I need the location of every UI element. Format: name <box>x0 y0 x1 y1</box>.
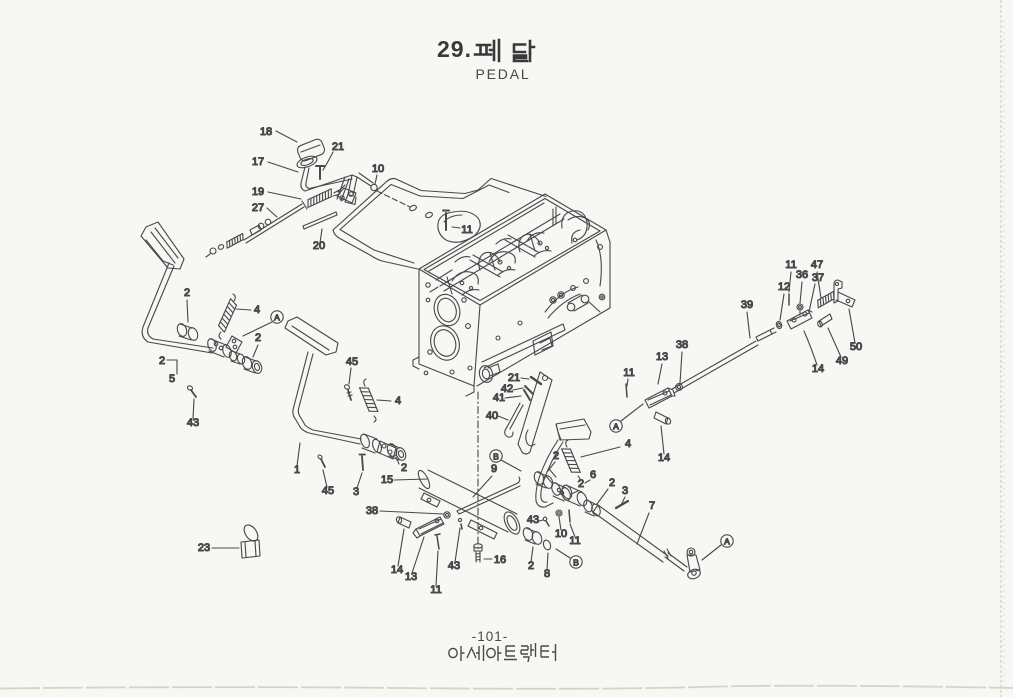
svg-text:2: 2 <box>401 462 407 474</box>
svg-text:B: B <box>493 452 499 462</box>
svg-text:2: 2 <box>184 287 190 299</box>
svg-text:5: 5 <box>169 373 175 385</box>
svg-text:15: 15 <box>381 474 393 486</box>
svg-text:13: 13 <box>656 351 668 363</box>
svg-text:47: 47 <box>811 259 823 271</box>
svg-text:2: 2 <box>609 477 615 489</box>
svg-text:41: 41 <box>493 392 505 404</box>
svg-text:39: 39 <box>741 299 753 311</box>
svg-text:3: 3 <box>353 486 359 498</box>
svg-text:20: 20 <box>313 240 325 252</box>
svg-text:A: A <box>613 422 619 432</box>
svg-text:29.: 29. <box>437 36 472 62</box>
svg-text:11: 11 <box>461 224 472 236</box>
svg-text:19: 19 <box>252 186 264 198</box>
svg-text:38: 38 <box>676 339 688 351</box>
svg-text:50: 50 <box>850 341 862 353</box>
svg-text:PEDAL: PEDAL <box>476 66 531 82</box>
svg-text:10: 10 <box>372 163 384 175</box>
svg-text:45: 45 <box>322 485 334 497</box>
svg-text:4: 4 <box>254 304 260 316</box>
svg-text:3: 3 <box>622 485 628 497</box>
svg-text:18: 18 <box>260 126 272 138</box>
svg-text:6: 6 <box>590 469 596 481</box>
svg-text:2: 2 <box>255 332 261 344</box>
svg-text:-101-: -101- <box>472 629 509 644</box>
svg-text:2: 2 <box>553 450 559 462</box>
svg-text:43: 43 <box>527 514 539 526</box>
svg-text:12: 12 <box>778 281 790 293</box>
svg-text:2: 2 <box>159 355 165 367</box>
svg-text:17: 17 <box>252 156 264 168</box>
svg-text:4: 4 <box>395 395 401 407</box>
svg-text:45: 45 <box>346 356 358 368</box>
svg-text:A: A <box>274 313 280 323</box>
svg-text:49: 49 <box>836 355 848 367</box>
svg-text:2: 2 <box>578 478 584 490</box>
svg-text:13: 13 <box>405 571 417 583</box>
svg-text:7: 7 <box>649 500 655 512</box>
svg-text:11: 11 <box>623 367 634 379</box>
svg-text:A: A <box>724 537 730 547</box>
svg-text:9: 9 <box>491 463 497 475</box>
svg-text:36: 36 <box>796 269 808 281</box>
svg-text:40: 40 <box>486 410 498 422</box>
svg-text:38: 38 <box>366 505 378 517</box>
svg-text:14: 14 <box>391 564 403 576</box>
svg-text:16: 16 <box>494 554 506 566</box>
svg-text:43: 43 <box>448 560 460 572</box>
svg-text:21: 21 <box>332 141 344 153</box>
svg-text:B: B <box>573 558 579 568</box>
svg-text:23: 23 <box>198 542 210 554</box>
svg-text:4: 4 <box>625 438 631 450</box>
svg-text:27: 27 <box>252 202 264 214</box>
svg-text:14: 14 <box>812 363 824 375</box>
